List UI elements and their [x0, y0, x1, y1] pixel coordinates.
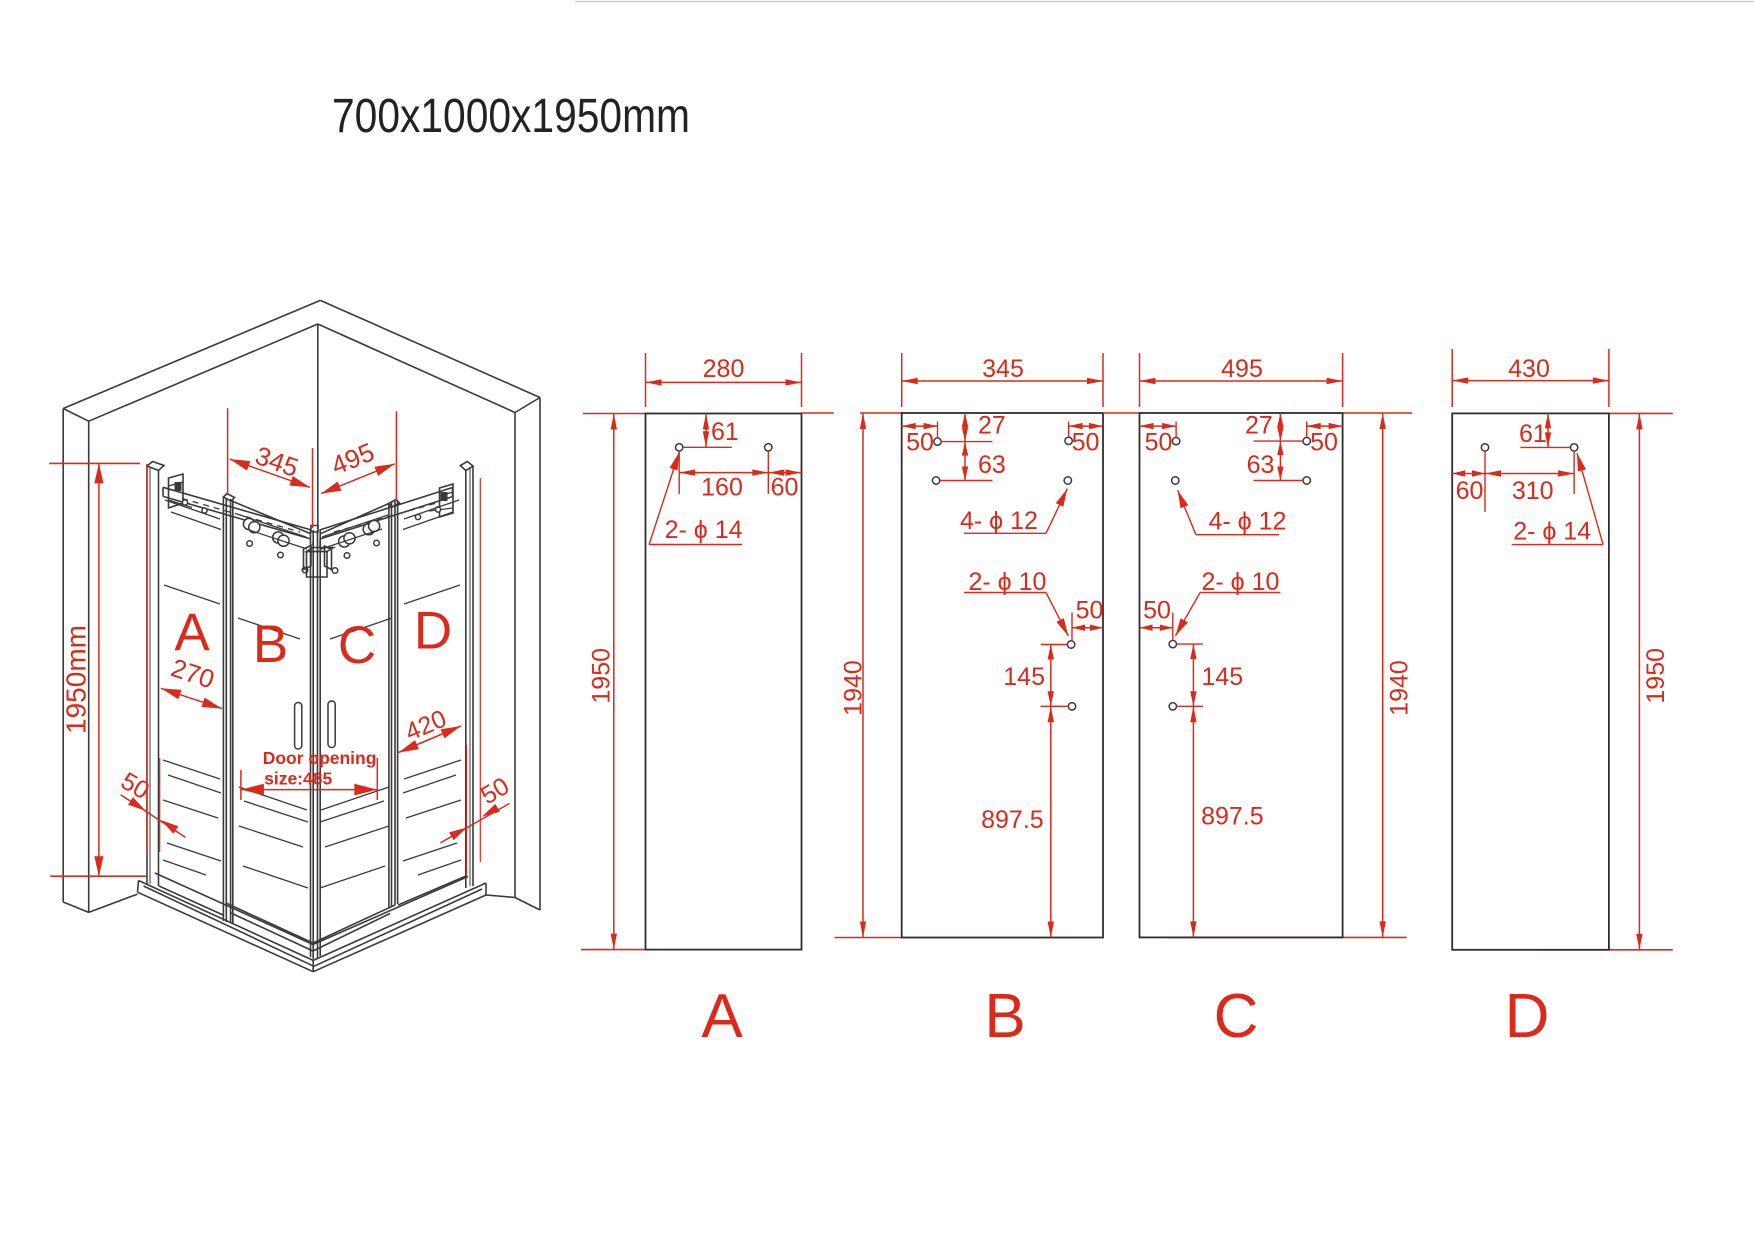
- svg-text:420: 420: [401, 705, 450, 747]
- svg-text:61: 61: [1519, 420, 1547, 448]
- svg-text:280: 280: [703, 355, 745, 383]
- svg-text:B: B: [984, 982, 1025, 1051]
- svg-text:27: 27: [978, 412, 1006, 440]
- svg-text:C: C: [338, 616, 376, 675]
- svg-text:50: 50: [1076, 597, 1104, 625]
- svg-text:1940: 1940: [1385, 660, 1413, 716]
- svg-text:D: D: [414, 602, 452, 661]
- svg-text:50: 50: [1143, 597, 1171, 625]
- svg-text:897.5: 897.5: [1201, 803, 1264, 831]
- svg-text:B: B: [253, 615, 288, 674]
- svg-text:2- ϕ 10: 2- ϕ 10: [969, 568, 1047, 596]
- svg-text:270: 270: [168, 652, 219, 694]
- svg-text:4- ϕ 12: 4- ϕ 12: [1209, 508, 1287, 536]
- svg-text:27: 27: [1245, 412, 1273, 440]
- svg-text:50: 50: [1310, 429, 1338, 457]
- svg-text:A: A: [701, 982, 743, 1051]
- svg-text:1950: 1950: [1642, 648, 1670, 704]
- svg-text:700x1000x1950mm: 700x1000x1950mm: [332, 90, 690, 143]
- svg-text:63: 63: [1247, 451, 1275, 479]
- svg-text:size:485: size:485: [264, 769, 332, 789]
- svg-text:60: 60: [1456, 477, 1484, 505]
- svg-text:C: C: [1214, 982, 1259, 1051]
- svg-text:63: 63: [978, 451, 1006, 479]
- svg-text:1950: 1950: [588, 648, 616, 704]
- svg-text:D: D: [1505, 982, 1550, 1051]
- svg-text:50: 50: [1072, 429, 1100, 457]
- svg-text:2- ϕ 14: 2- ϕ 14: [665, 516, 743, 544]
- svg-text:4- ϕ 12: 4- ϕ 12: [960, 507, 1038, 535]
- svg-text:2- ϕ 10: 2- ϕ 10: [1202, 568, 1280, 596]
- svg-text:50: 50: [906, 429, 934, 457]
- svg-text:50: 50: [1145, 429, 1173, 457]
- svg-text:160: 160: [701, 474, 743, 502]
- svg-text:345: 345: [252, 440, 303, 483]
- svg-text:Door opening: Door opening: [263, 748, 377, 768]
- svg-text:50: 50: [116, 767, 154, 805]
- svg-text:1950mm: 1950mm: [61, 625, 92, 734]
- svg-text:1940: 1940: [840, 660, 868, 716]
- svg-text:2- ϕ 14: 2- ϕ 14: [1513, 518, 1591, 546]
- svg-text:61: 61: [711, 418, 739, 446]
- svg-text:145: 145: [1202, 663, 1244, 691]
- svg-text:345: 345: [982, 355, 1024, 383]
- svg-text:310: 310: [1512, 477, 1554, 505]
- svg-text:897.5: 897.5: [981, 806, 1044, 834]
- svg-text:495: 495: [1221, 355, 1263, 383]
- svg-text:430: 430: [1508, 355, 1550, 383]
- svg-text:145: 145: [1003, 663, 1045, 691]
- svg-text:60: 60: [771, 474, 799, 502]
